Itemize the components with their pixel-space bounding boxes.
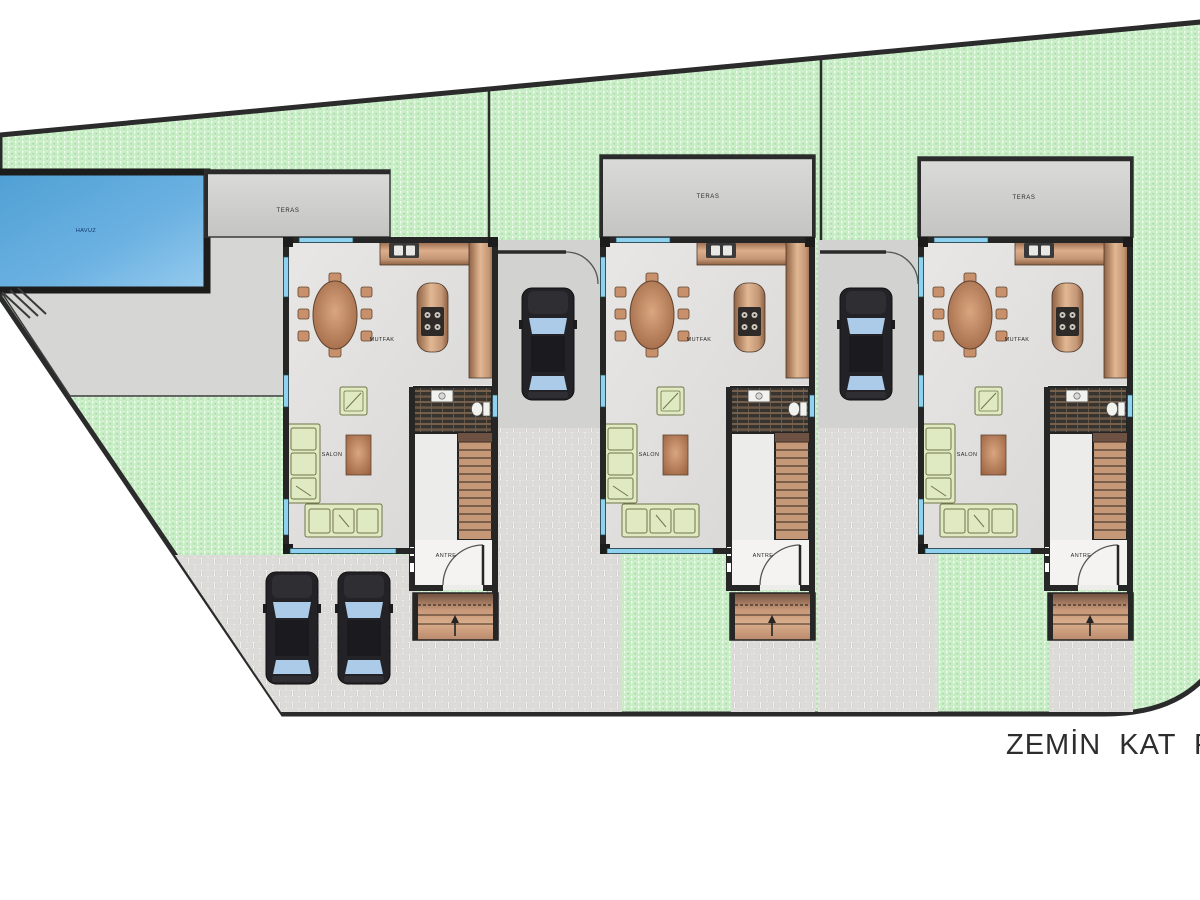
car-1 [263,572,321,684]
terrace-1-label: TERAS [276,208,299,214]
path-below-entry-2 [731,640,815,712]
villa-3-entrance-label: ANTRE [1071,553,1092,559]
car-2 [335,572,393,684]
villa-2-entrance-label: ANTRE [753,553,774,559]
terrace-2: TERAS [600,155,815,237]
path-below-entry-3 [1049,640,1133,712]
villa-2-kitchen-label: MUTFAK [687,337,712,343]
site-plan-canvas: HAVUZ TERAS TERAS TERAS MUTFAK SALON ANT… [0,0,1200,900]
plan-title: ZEMİN KAT PLANI [1006,728,1200,761]
car-3 [519,288,577,400]
pool-label: HAVUZ [76,228,96,234]
terrace-2-label: TERAS [696,194,719,200]
villa-3-kitchen-label: MUTFAK [1005,337,1030,343]
path-below-entry-1 [418,640,488,712]
terrace-3: TERAS [918,157,1133,237]
villa-1-living-label: SALON [322,452,343,458]
villa-2-living-label: SALON [639,452,660,458]
terrace-1: TERAS [205,170,390,237]
villa-1-entrance-label: ANTRE [436,553,457,559]
terrace-3-label: TERAS [1012,195,1035,201]
villa-3-living-label: SALON [957,452,978,458]
villa-1-kitchen-label: MUTFAK [370,337,395,343]
car-4 [837,288,895,400]
